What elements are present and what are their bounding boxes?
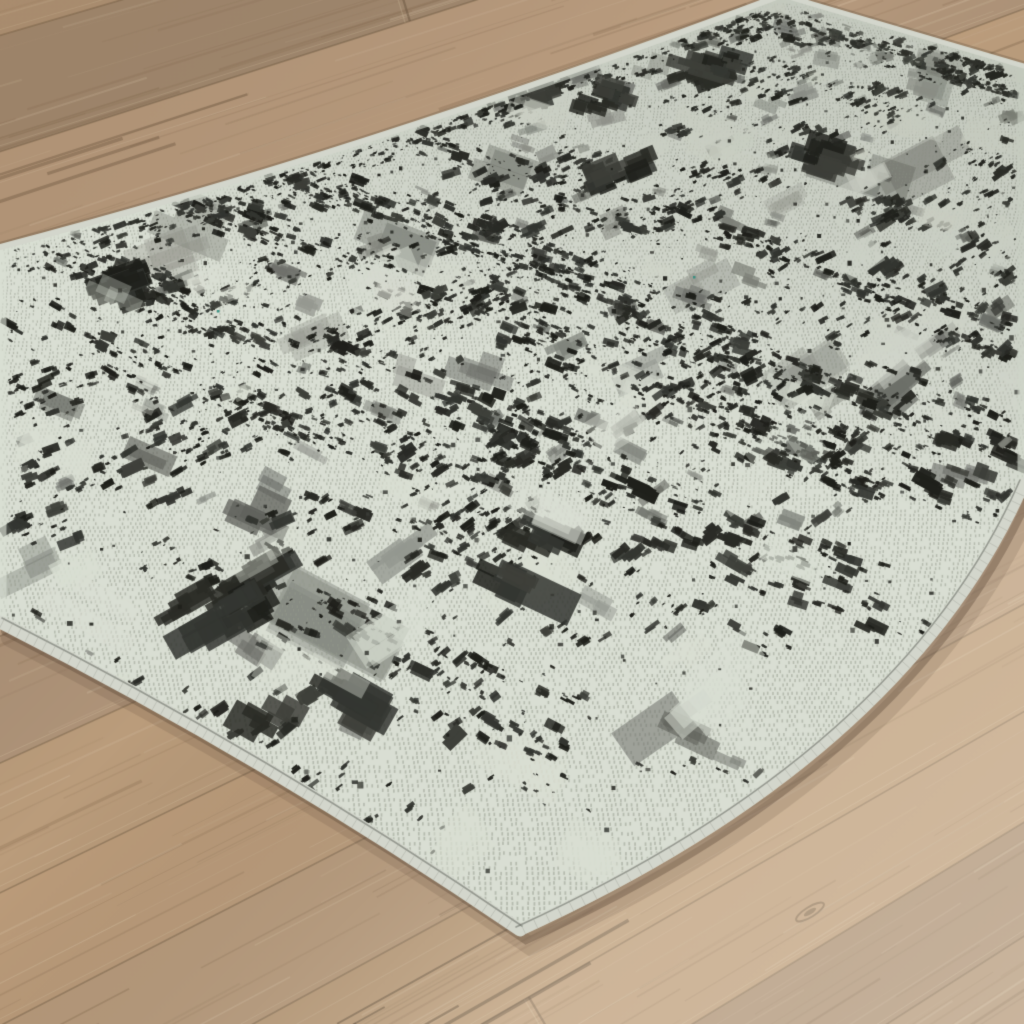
product-photo — [0, 0, 1024, 1024]
rug-on-wood-floor-canvas — [0, 0, 1024, 1024]
